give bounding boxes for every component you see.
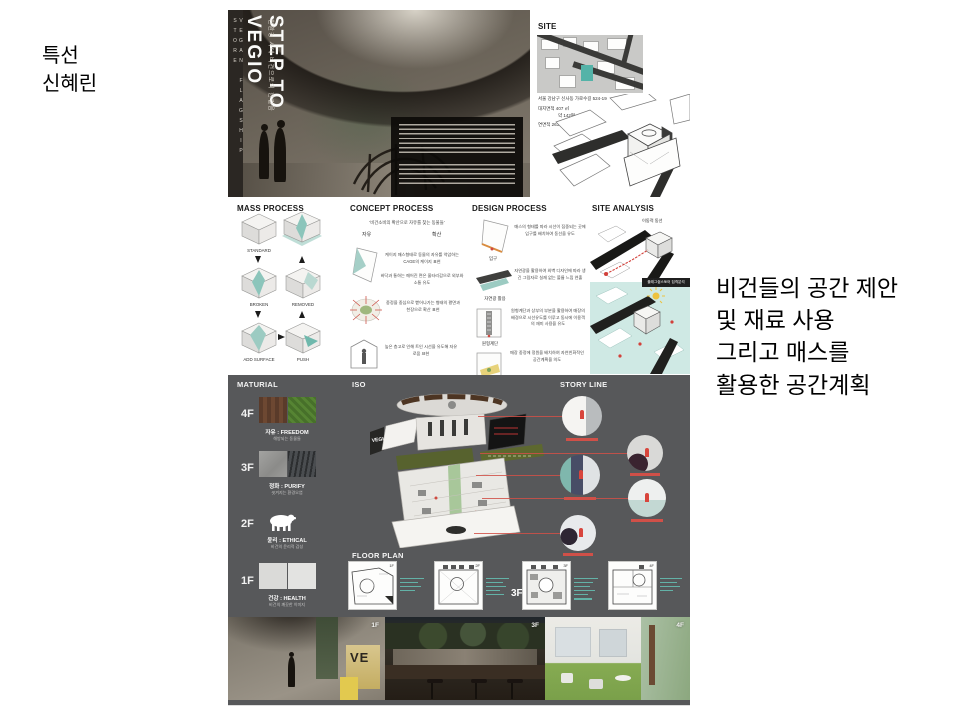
leader-line-shape (474, 533, 560, 534)
floor-plan-thumb: 3F (522, 561, 571, 610)
stool-leg-shape (431, 683, 433, 699)
counter-shape (385, 665, 545, 679)
mass-cube-addsurface (240, 321, 278, 355)
figure-shape (579, 528, 583, 537)
story-caption-shape (564, 497, 596, 500)
stool-shape (471, 679, 487, 683)
concept-radial-diagram (350, 294, 382, 326)
render-floor-label: 1F (371, 622, 379, 629)
floor-label: 3F (241, 462, 254, 474)
slide-canvas: 특선 신혜린 비건들의 공간 제안 및 재료 사용 그리고 매스를 활용한 공간… (0, 0, 960, 720)
material-label: 자유 : FREEDOM (254, 428, 320, 436)
caption-line: 그리고 매스를 (716, 336, 898, 368)
concept-text: 바닥과 통하는 깨어진 면은 울타리감으로 외부와 소통 유도 (380, 273, 464, 286)
figure-shape (580, 410, 584, 419)
caption-line: 비건들의 공간 제안 (716, 272, 898, 304)
hero-description-box (391, 117, 523, 197)
mass-cube-context (280, 208, 324, 248)
leader-line-shape (478, 416, 564, 417)
leader-line-shape (482, 498, 630, 499)
presentation-board: VEGAN FLAGSHIP STORE STEP TO VEGIO 친환경 시… (228, 10, 690, 706)
story-vignette (562, 396, 602, 436)
design-item-label: 자연광 활용 (474, 296, 516, 302)
story-vignette (560, 515, 596, 551)
plan-floor-number: 4F (649, 563, 654, 568)
site-header: SITE (538, 22, 557, 31)
wood-swatch (259, 397, 287, 423)
design-item-text: 매장 중정에 정원을 배치하여 자연친화적인 공간계획을 의도 (510, 350, 584, 363)
concept-term: 확산 (432, 231, 441, 238)
concept-quote: '비건소비의 확산으로 자유를 찾는 동물들' (350, 220, 464, 227)
person-head-shape (289, 652, 294, 657)
design-item-label: 원형계단 (474, 341, 506, 347)
material-label: 윤리 : ETHICAL (254, 536, 320, 544)
plan-floor-number: 2F (475, 563, 480, 568)
caption-line: 활용한 공간계획 (716, 369, 898, 401)
stone-swatch (288, 451, 316, 477)
plan-legend (660, 575, 686, 594)
figure-shape (645, 493, 649, 502)
concept-text: 중정을 중심으로 뻗어나가는 형태의 평면과 천장으로 확산 표현 (384, 300, 462, 313)
plan-legend (574, 575, 600, 602)
paragraph-lines-shape (399, 124, 515, 154)
analysis-circulation-map (590, 224, 690, 280)
board-title: STEP TO VEGIO (242, 15, 286, 180)
material-sub: 해방되는 동물들 (254, 436, 320, 442)
concept-cage-diagram (351, 246, 379, 284)
tile-swatch (259, 563, 287, 589)
mass-step-label: BROKEN (236, 302, 282, 307)
mass-step-label: ADD SURFACE (236, 357, 282, 362)
plan-floor-number: 1F (389, 563, 394, 568)
floorplan-overlay-label: 3F (511, 588, 523, 599)
figure-shape (579, 470, 583, 479)
window-shape (599, 629, 627, 657)
round-table-shape (615, 675, 631, 681)
stool-leg-shape (511, 683, 513, 699)
plan-drawing (609, 562, 656, 609)
iso-exploded-axon: VEGIO (352, 390, 562, 548)
floor-plan-thumb: 2F (434, 561, 483, 610)
map-block-shape (545, 57, 560, 69)
arrow-up-icon (299, 256, 305, 263)
site-parcel-highlight (581, 65, 593, 81)
caption-line: 및 재료 사용 (716, 304, 898, 336)
site-axonometric-drawing (552, 94, 690, 197)
paragraph-lines-shape (399, 164, 515, 184)
render-4f: 4F (545, 617, 690, 700)
material-label: 건강 : HEALTH (254, 594, 320, 602)
render-floor-label: 3F (531, 622, 539, 629)
concept-house-diagram (349, 338, 379, 370)
arrow-down-icon (255, 311, 261, 318)
site-map (537, 35, 643, 93)
floor-plan-thumb: 4F (608, 561, 657, 610)
author-name: 신혜린 (42, 70, 97, 98)
award-label: 특선 (42, 42, 97, 70)
design-item-text: 매스의 형태를 따라 시선이 집중되는 곳에 입구를 배치하여 동선을 유도 (514, 224, 586, 237)
plan-drawing (523, 562, 570, 609)
plan-floor-number: 3F (563, 563, 568, 568)
planter-cube-shape (589, 679, 603, 689)
floor-plan-thumb: 1F (348, 561, 397, 610)
concrete-swatch (259, 451, 287, 477)
material-header: MATURIAL (237, 380, 278, 389)
floorplan-header: FLOOR PLAN (352, 551, 404, 560)
stool-leg-shape (475, 683, 477, 699)
hero-photo: VEGAN FLAGSHIP STORE STEP TO VEGIO 친환경 시… (228, 10, 530, 197)
leader-line-shape (480, 453, 628, 454)
plan-legend (400, 575, 426, 594)
design-daylight-diagram (474, 266, 514, 294)
story-caption-shape (566, 438, 598, 441)
design-item-label: 입구 (474, 256, 512, 262)
render-1f: VE 1F (228, 617, 385, 700)
design-process-header: DESIGN PROCESS (472, 204, 547, 213)
arrow-down-icon (255, 256, 261, 263)
mass-step-label: REMOVED (280, 302, 326, 307)
stool-shape (427, 679, 443, 683)
floor-label: 1F (241, 575, 254, 587)
concept-text: 케이지 매스형태로 동물의 자유를 억압하는 CAGE의 케이지 표현 (380, 252, 464, 265)
story-vignette (628, 479, 666, 517)
right-caption: 비건들의 공간 제안 및 재료 사용 그리고 매스를 활용한 공간계획 (716, 272, 898, 401)
material-sub: 씻겨지는 환경오염 (254, 490, 320, 496)
tile-swatch (288, 563, 316, 589)
polar-bear-icon (266, 510, 296, 532)
plan-drawing (349, 562, 396, 609)
floor-label: 2F (241, 518, 254, 530)
story-vignette (627, 435, 663, 471)
mass-cube-push (284, 321, 322, 355)
concept-term: 자유 (362, 231, 371, 238)
map-block-shape (559, 75, 576, 88)
figure-shape (645, 448, 649, 457)
plan-legend (486, 575, 512, 598)
story-caption-shape (563, 553, 593, 556)
storyline-header: STORY LINE (560, 380, 607, 389)
window-shape (555, 627, 591, 657)
story-vignette (560, 455, 600, 495)
floor-label: 4F (241, 408, 254, 420)
board-subtitle: 친환경 시대 비건으로의 한걸음 (267, 19, 276, 129)
story-caption-shape (630, 473, 660, 476)
material-label: 정화 : PURIFY (254, 482, 320, 490)
material-sub: 비건의 윤리적 감성 (254, 544, 320, 550)
analysis-attraction-map (590, 282, 690, 374)
person-silhouette (288, 657, 295, 687)
concept-text: 높은 층고로 인해 트인 시선을 유도해 자유로움 표현 (384, 344, 458, 357)
material-sub: 비건의 깨끗한 이미지 (254, 602, 320, 608)
story-caption-shape (631, 519, 663, 522)
mass-cube-standard (240, 212, 278, 246)
design-item-text: 원형계단과 상부의 부분을 활용하여 매장의 배경으로 시선유도를 이루고 동시… (510, 308, 586, 328)
design-stair-diagram (474, 306, 504, 340)
green-wall-shape (316, 617, 338, 679)
mass-step-label: PUSH (280, 357, 326, 362)
plan-drawing (435, 562, 482, 609)
mass-cube-removed (284, 266, 322, 300)
grass-swatch (288, 397, 316, 423)
design-item-text: 자연광을 활용하여 외벽 디자인에 따라 생긴 그림자로 실재 없는 볼륨 느낌… (514, 268, 586, 281)
render-3f: 3F (385, 617, 545, 700)
render-floor-label: 4F (676, 622, 684, 629)
window-strip-shape (393, 649, 537, 665)
tree-trunk-shape (649, 625, 655, 685)
attraction-label: 플래그쉽스토어 집객분석 (642, 278, 690, 287)
planter-cube-shape (561, 673, 573, 683)
award-block: 특선 신혜린 (42, 42, 97, 98)
iso-header: ISO (352, 380, 366, 389)
mass-cube-broken (240, 266, 278, 300)
vegio-sign-text: VE (350, 650, 369, 665)
design-entrance-diagram (478, 216, 510, 254)
mass-step-label: STANDARD (236, 248, 282, 253)
leader-line-shape (476, 475, 562, 476)
foliage-shape (385, 623, 545, 649)
site-analysis-header: SITE ANALYSIS (592, 204, 654, 213)
stool-shape (507, 679, 523, 683)
concept-process-header: CONCEPT PROCESS (350, 204, 433, 213)
arrow-up-icon (299, 311, 305, 318)
yellow-kiosk-shape (340, 677, 358, 700)
